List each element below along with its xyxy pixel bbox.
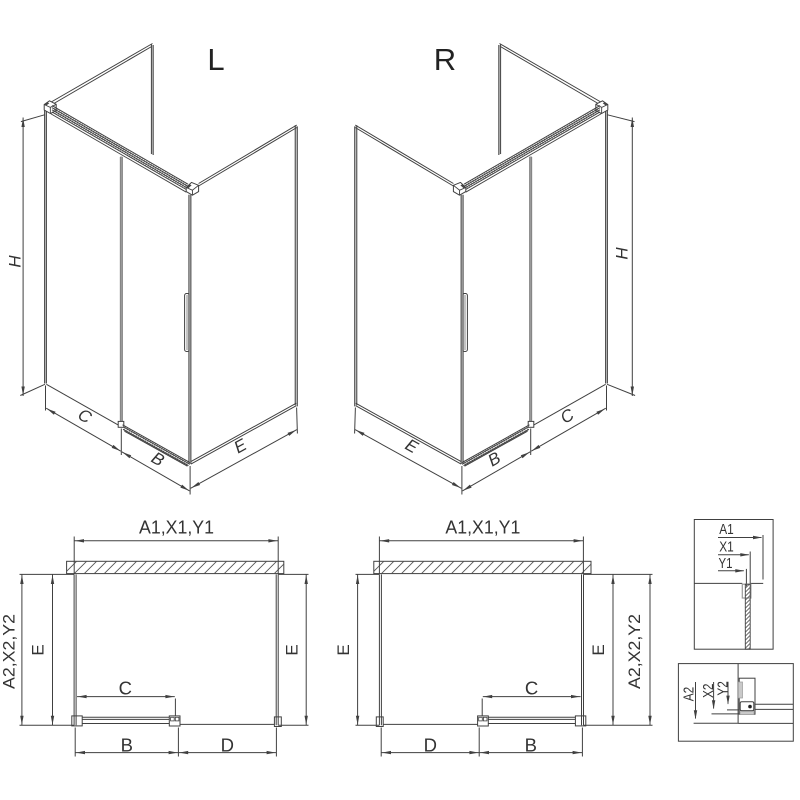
svg-text:E: E (29, 644, 48, 655)
svg-text:A1,X1,Y1: A1,X1,Y1 (139, 518, 214, 538)
svg-text:A1: A1 (719, 522, 734, 538)
svg-text:E: E (589, 644, 608, 655)
svg-text:B: B (525, 734, 537, 755)
svg-text:H: H (6, 255, 25, 268)
svg-text:E: E (231, 435, 251, 457)
svg-text:E: E (402, 435, 422, 457)
svg-text:X2: X2 (701, 684, 717, 699)
svg-text:A2,X2,Y2: A2,X2,Y2 (0, 614, 19, 689)
svg-text:L: L (207, 42, 224, 77)
svg-text:C: C (75, 405, 96, 428)
svg-text:C: C (525, 677, 538, 698)
svg-text:X1: X1 (719, 540, 734, 556)
svg-text:C: C (557, 405, 578, 428)
svg-text:B: B (121, 734, 133, 755)
svg-text:E: E (334, 644, 353, 655)
svg-text:D: D (424, 734, 437, 755)
svg-text:R: R (434, 42, 456, 77)
svg-text:Y2: Y2 (716, 681, 732, 696)
svg-text:Y1: Y1 (719, 556, 733, 572)
svg-text:B: B (148, 448, 167, 470)
svg-text:A2: A2 (681, 687, 697, 702)
svg-text:D: D (221, 734, 234, 755)
svg-text:H: H (613, 247, 632, 260)
svg-text:C: C (119, 677, 132, 698)
svg-text:A1,X1,Y1: A1,X1,Y1 (445, 518, 520, 538)
svg-text:E: E (283, 644, 302, 655)
svg-text:B: B (485, 448, 504, 470)
svg-text:A2,X2,Y2: A2,X2,Y2 (625, 614, 644, 689)
